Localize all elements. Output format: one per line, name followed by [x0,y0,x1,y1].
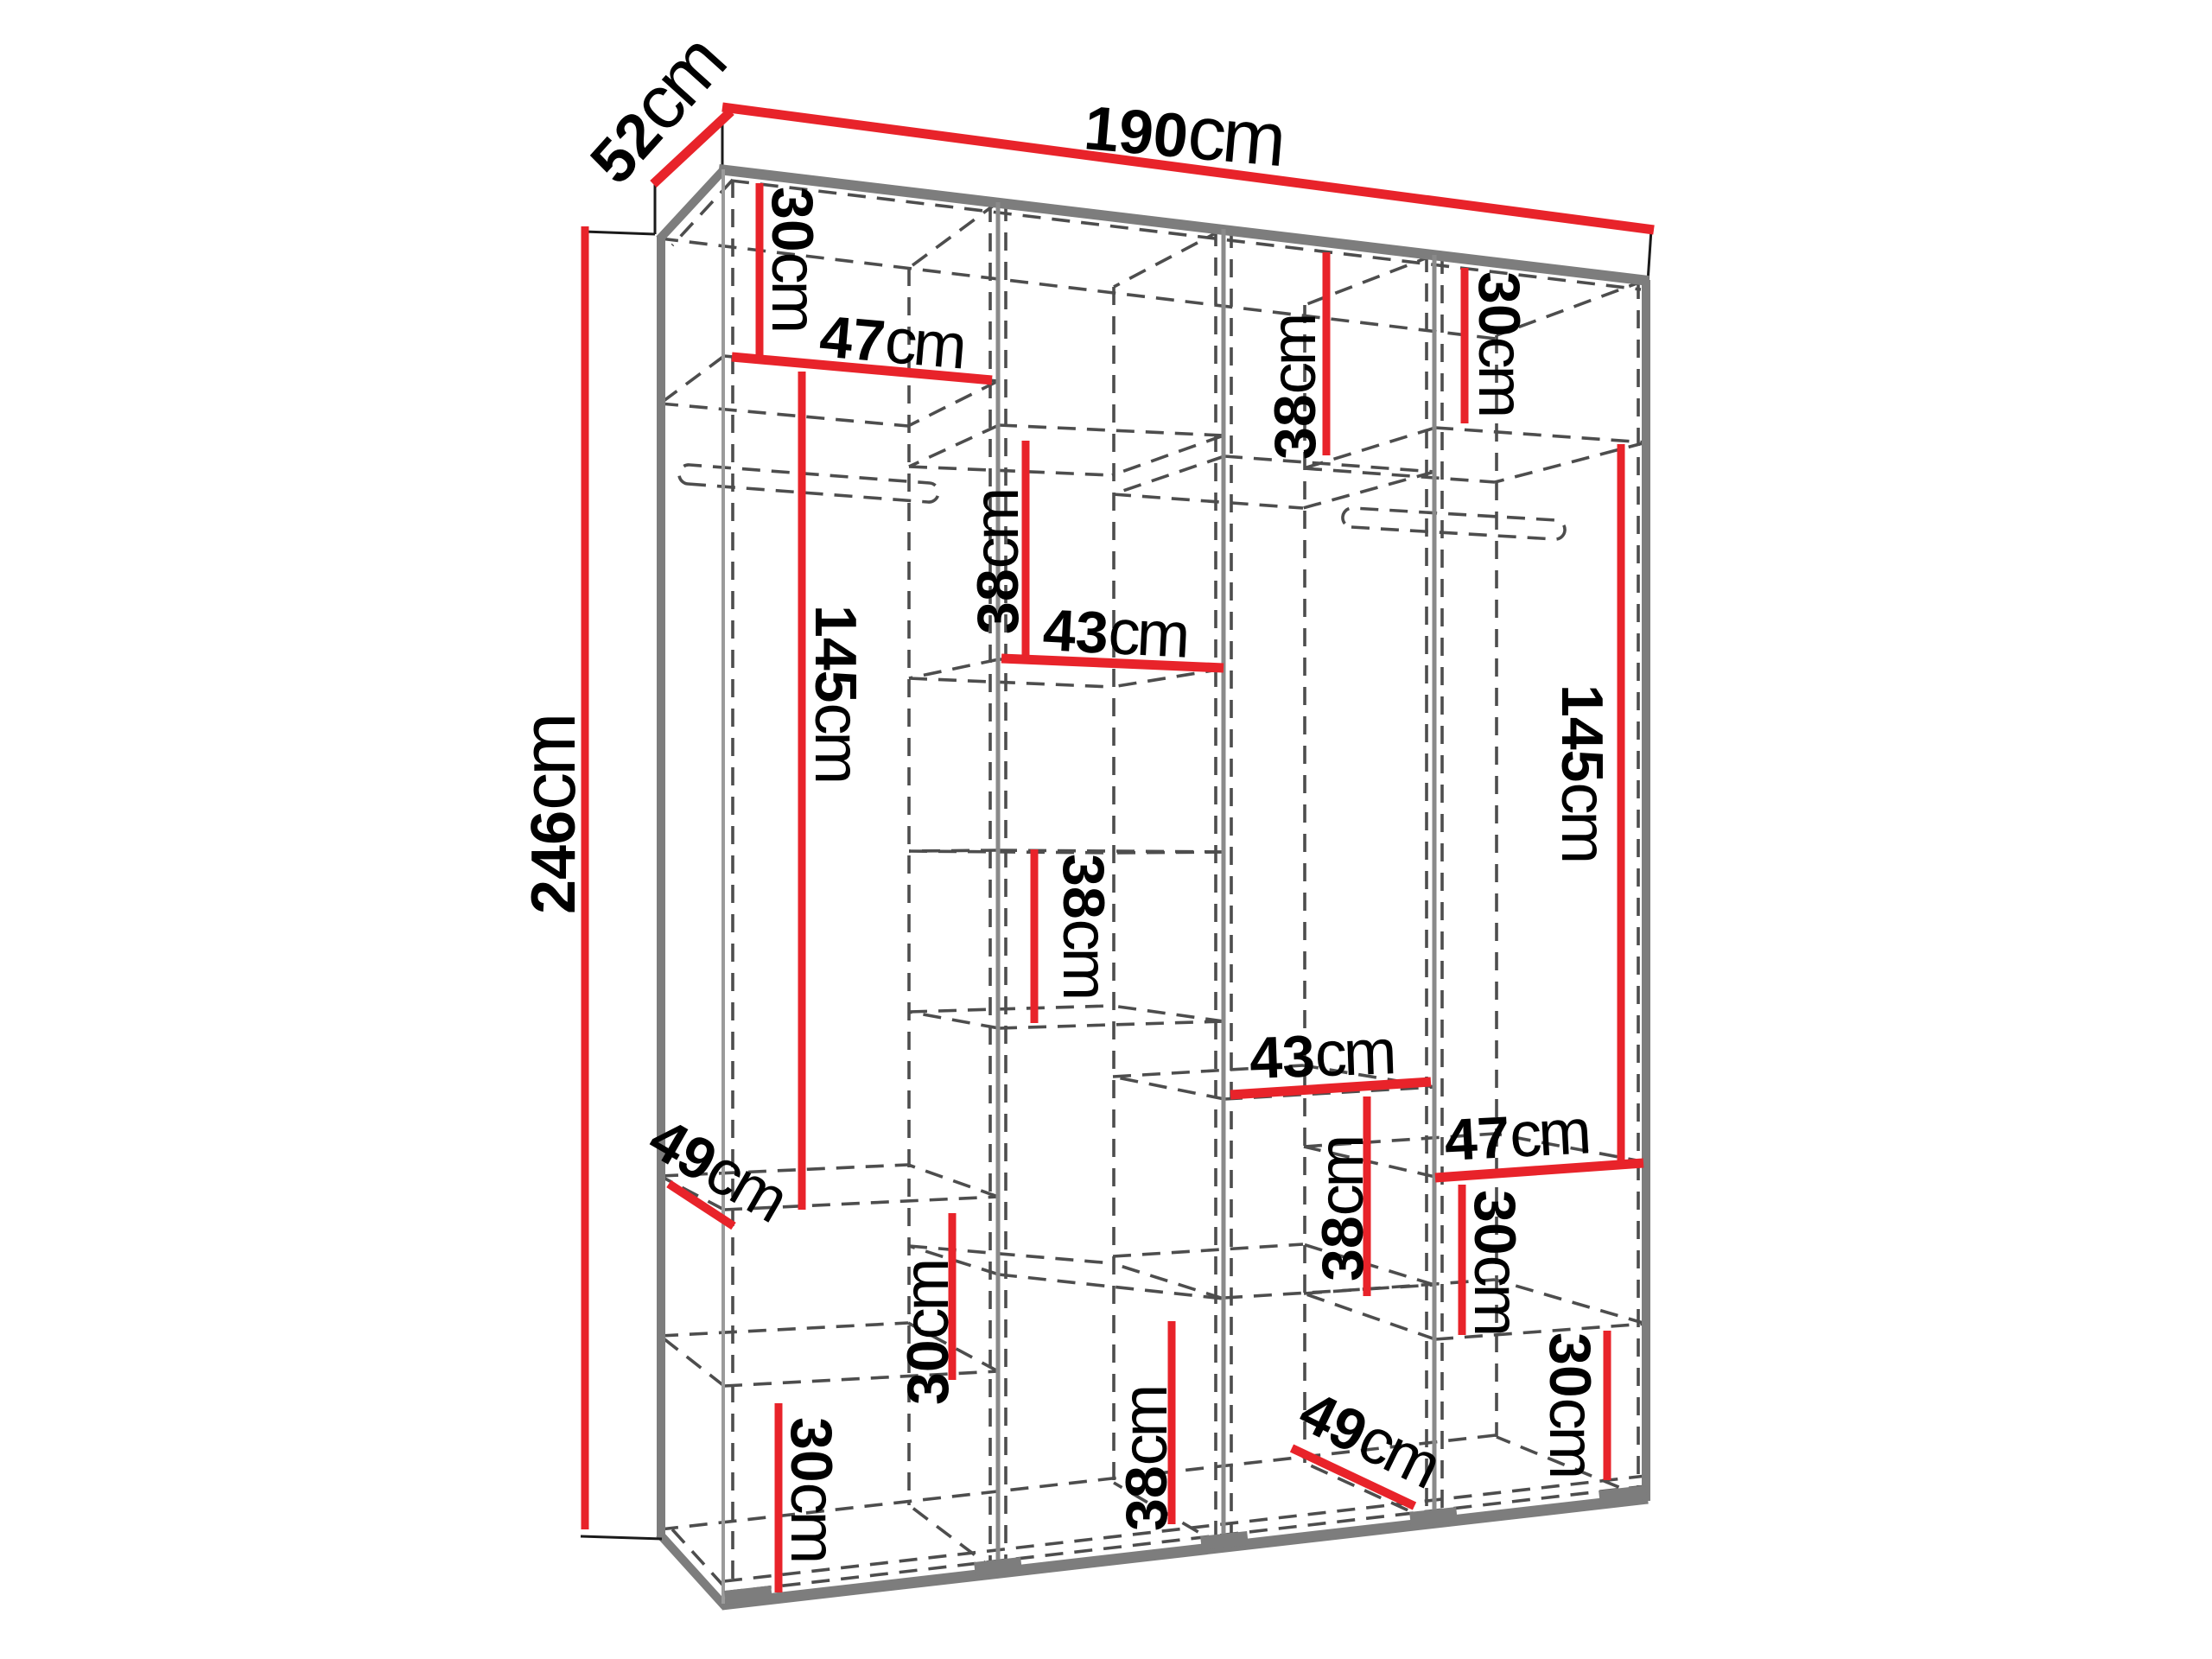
svg-text:30cm: 30cm [1465,271,1537,415]
svg-text:47cm: 47cm [1442,1095,1589,1174]
svg-text:30cm: 30cm [1461,1190,1533,1333]
svg-text:38cm: 38cm [960,491,1032,634]
svg-text:38cm: 38cm [1257,316,1329,460]
svg-text:38cm: 38cm [1305,1138,1376,1281]
svg-text:30cm: 30cm [1536,1332,1608,1476]
svg-text:145cm: 145cm [1548,684,1620,861]
svg-text:38cm: 38cm [1050,854,1122,997]
svg-text:43cm: 43cm [1249,1015,1395,1092]
svg-text:30cm: 30cm [759,187,830,330]
svg-text:43cm: 43cm [1041,592,1188,671]
svg-text:145cm: 145cm [802,605,874,781]
svg-text:47cm: 47cm [817,298,967,382]
svg-text:38cm: 38cm [1109,1388,1180,1531]
svg-text:30cm: 30cm [778,1417,849,1560]
svg-text:30cm: 30cm [890,1262,962,1405]
